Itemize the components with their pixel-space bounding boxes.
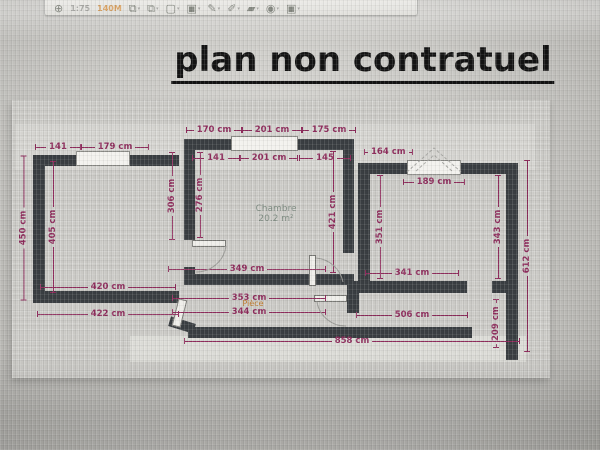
- dimension[interactable]: 612 cm: [520, 160, 534, 352]
- app-toolbar: ⊕1:75140M⧉▾⧉▾▢▾▣▾✎▾✐▾▰▾◉▾▣▾: [44, 0, 418, 16]
- dimension[interactable]: 506 cm: [356, 308, 468, 322]
- dimension[interactable]: 405 cm: [46, 161, 60, 293]
- pen-icon[interactable]: ✐▾: [227, 4, 240, 14]
- dimension[interactable]: 276 cm: [193, 152, 207, 238]
- dimension[interactable]: 175 cm: [302, 123, 356, 137]
- dimension[interactable]: 422 cm: [37, 307, 179, 321]
- window[interactable]: [407, 160, 461, 175]
- wall-segment[interactable]: [506, 163, 518, 294]
- dimension[interactable]: 164 cm: [364, 145, 408, 159]
- pages-icon[interactable]: ▣▾: [186, 4, 200, 14]
- window[interactable]: [231, 136, 298, 151]
- dimension[interactable]: 349 cm: [168, 262, 326, 276]
- door-leaf[interactable]: [192, 240, 226, 247]
- dimension[interactable]: 306 cm: [165, 152, 179, 240]
- pencil-icon[interactable]: ✎▾: [207, 4, 220, 14]
- dimension[interactable]: 201 cm: [240, 151, 298, 165]
- printer-icon[interactable]: ▣▾: [286, 4, 300, 14]
- compass-icon[interactable]: ⊕: [54, 4, 63, 14]
- room-label[interactable]: Chambre20.2 m²: [255, 204, 296, 224]
- room-label[interactable]: Pièce: [242, 299, 263, 309]
- dimension[interactable]: 450 cm: [16, 156, 30, 301]
- scale-text: 1:75: [70, 4, 90, 14]
- dimension[interactable]: 351 cm: [373, 175, 387, 279]
- eraser-icon[interactable]: ▰▾: [247, 4, 259, 14]
- dimension[interactable]: 179 cm: [81, 140, 149, 154]
- wall-segment[interactable]: [347, 281, 467, 293]
- dimension[interactable]: 420 cm: [40, 280, 176, 294]
- dimension[interactable]: 341 cm: [365, 266, 459, 280]
- dimension[interactable]: 170 cm: [186, 123, 242, 137]
- dimension[interactable]: 421 cm: [326, 151, 340, 273]
- wall-segment[interactable]: [506, 294, 518, 360]
- dimension[interactable]: 141: [35, 140, 81, 154]
- dimension[interactable]: 189 cm: [403, 175, 465, 189]
- dimension[interactable]: 858 cm: [184, 334, 520, 348]
- page-title: plan non contratuel: [171, 40, 554, 84]
- wall-segment[interactable]: [492, 281, 506, 293]
- dimension[interactable]: 201 cm: [242, 123, 302, 137]
- eye-icon[interactable]: ◉▾: [266, 4, 279, 14]
- copy-icon[interactable]: ⧉▾: [129, 4, 140, 14]
- dimension[interactable]: 145: [299, 151, 351, 165]
- duplicate-icon[interactable]: ⧉▾: [147, 4, 158, 14]
- dimension[interactable]: 343 cm: [491, 175, 505, 279]
- new-page-icon[interactable]: ▢▾: [166, 4, 180, 14]
- zoom-badge: 140M: [97, 4, 122, 14]
